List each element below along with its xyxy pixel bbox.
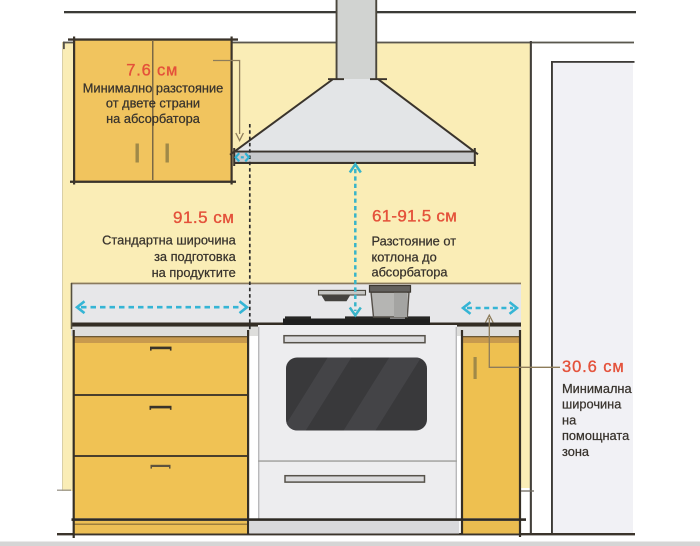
svg-text:широчина: широчина [562, 397, 622, 412]
svg-text:за подготовка: за подготовка [154, 249, 237, 264]
svg-text:61-91.5 см: 61-91.5 см [372, 206, 457, 225]
svg-text:котлона до: котлона до [372, 250, 437, 265]
svg-text:7.6 см: 7.6 см [126, 62, 178, 80]
svg-text:на: на [562, 412, 577, 427]
svg-text:на продуктите: на продуктите [152, 265, 236, 280]
svg-text:Разстояние от: Разстояние от [372, 234, 457, 249]
svg-text:30.6 см: 30.6 см [562, 358, 625, 376]
svg-text:абсорбатора: абсорбатора [372, 265, 449, 280]
svg-text:Минимална: Минимална [562, 381, 632, 396]
svg-text:на абсорбатора: на абсорбатора [106, 111, 201, 126]
svg-text:зона: зона [562, 444, 590, 459]
svg-text:Стандартна широчина: Стандартна широчина [102, 233, 236, 248]
svg-text:от двете страни: от двете страни [106, 96, 200, 111]
svg-text:91.5 см: 91.5 см [173, 208, 235, 227]
svg-text:Минимално разстояние: Минимално разстояние [83, 81, 223, 96]
svg-text:помощната: помощната [562, 428, 630, 443]
